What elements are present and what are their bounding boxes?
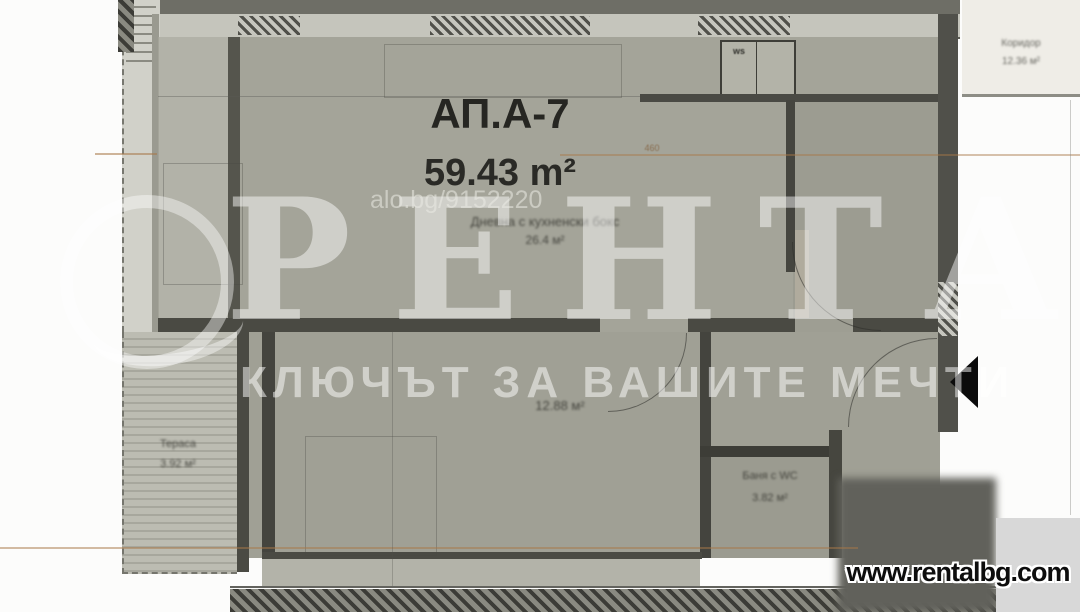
dimension-line-bottom [0,547,858,549]
website-url: www.rentalbg.com [836,556,1080,590]
apartment-title: АП.А-7 [340,88,660,141]
bathroom-area: 3.82 м² [713,492,827,506]
terrace-area: 3.92 м² [130,458,226,472]
floor-plan-screenshot: ws 460 Коридор 12.36 м² АП.А-7 59.4 [0,0,1080,612]
corridor-name: Коридор [966,38,1076,51]
wall-block-top-left [118,0,134,52]
top-outer-wall [158,0,960,14]
watermark-listing-ref: alo.bg/9152220 [370,186,542,215]
watermark-tagline: КЛЮЧЪТ ЗА ВАШИТЕ МЕЧТИ [240,358,1015,408]
building-core-blur [838,478,996,612]
bed-outline [305,436,437,556]
bathroom-name: Баня с WC [713,470,827,484]
bathroom-top-wall [700,446,842,457]
bottom-light-strip [262,559,700,586]
watermark-brand: РЕНТАЛ [225,176,1080,344]
corridor-area-value: 12.36 м² [966,56,1076,69]
closet-label: ws [726,46,752,57]
window-top-left [238,16,300,35]
closet-shelf-line [756,42,757,94]
window-top-center [430,16,590,35]
dimension-line-left [95,153,157,155]
window-top-right [698,16,790,35]
terrace-name: Тераса [130,438,226,452]
